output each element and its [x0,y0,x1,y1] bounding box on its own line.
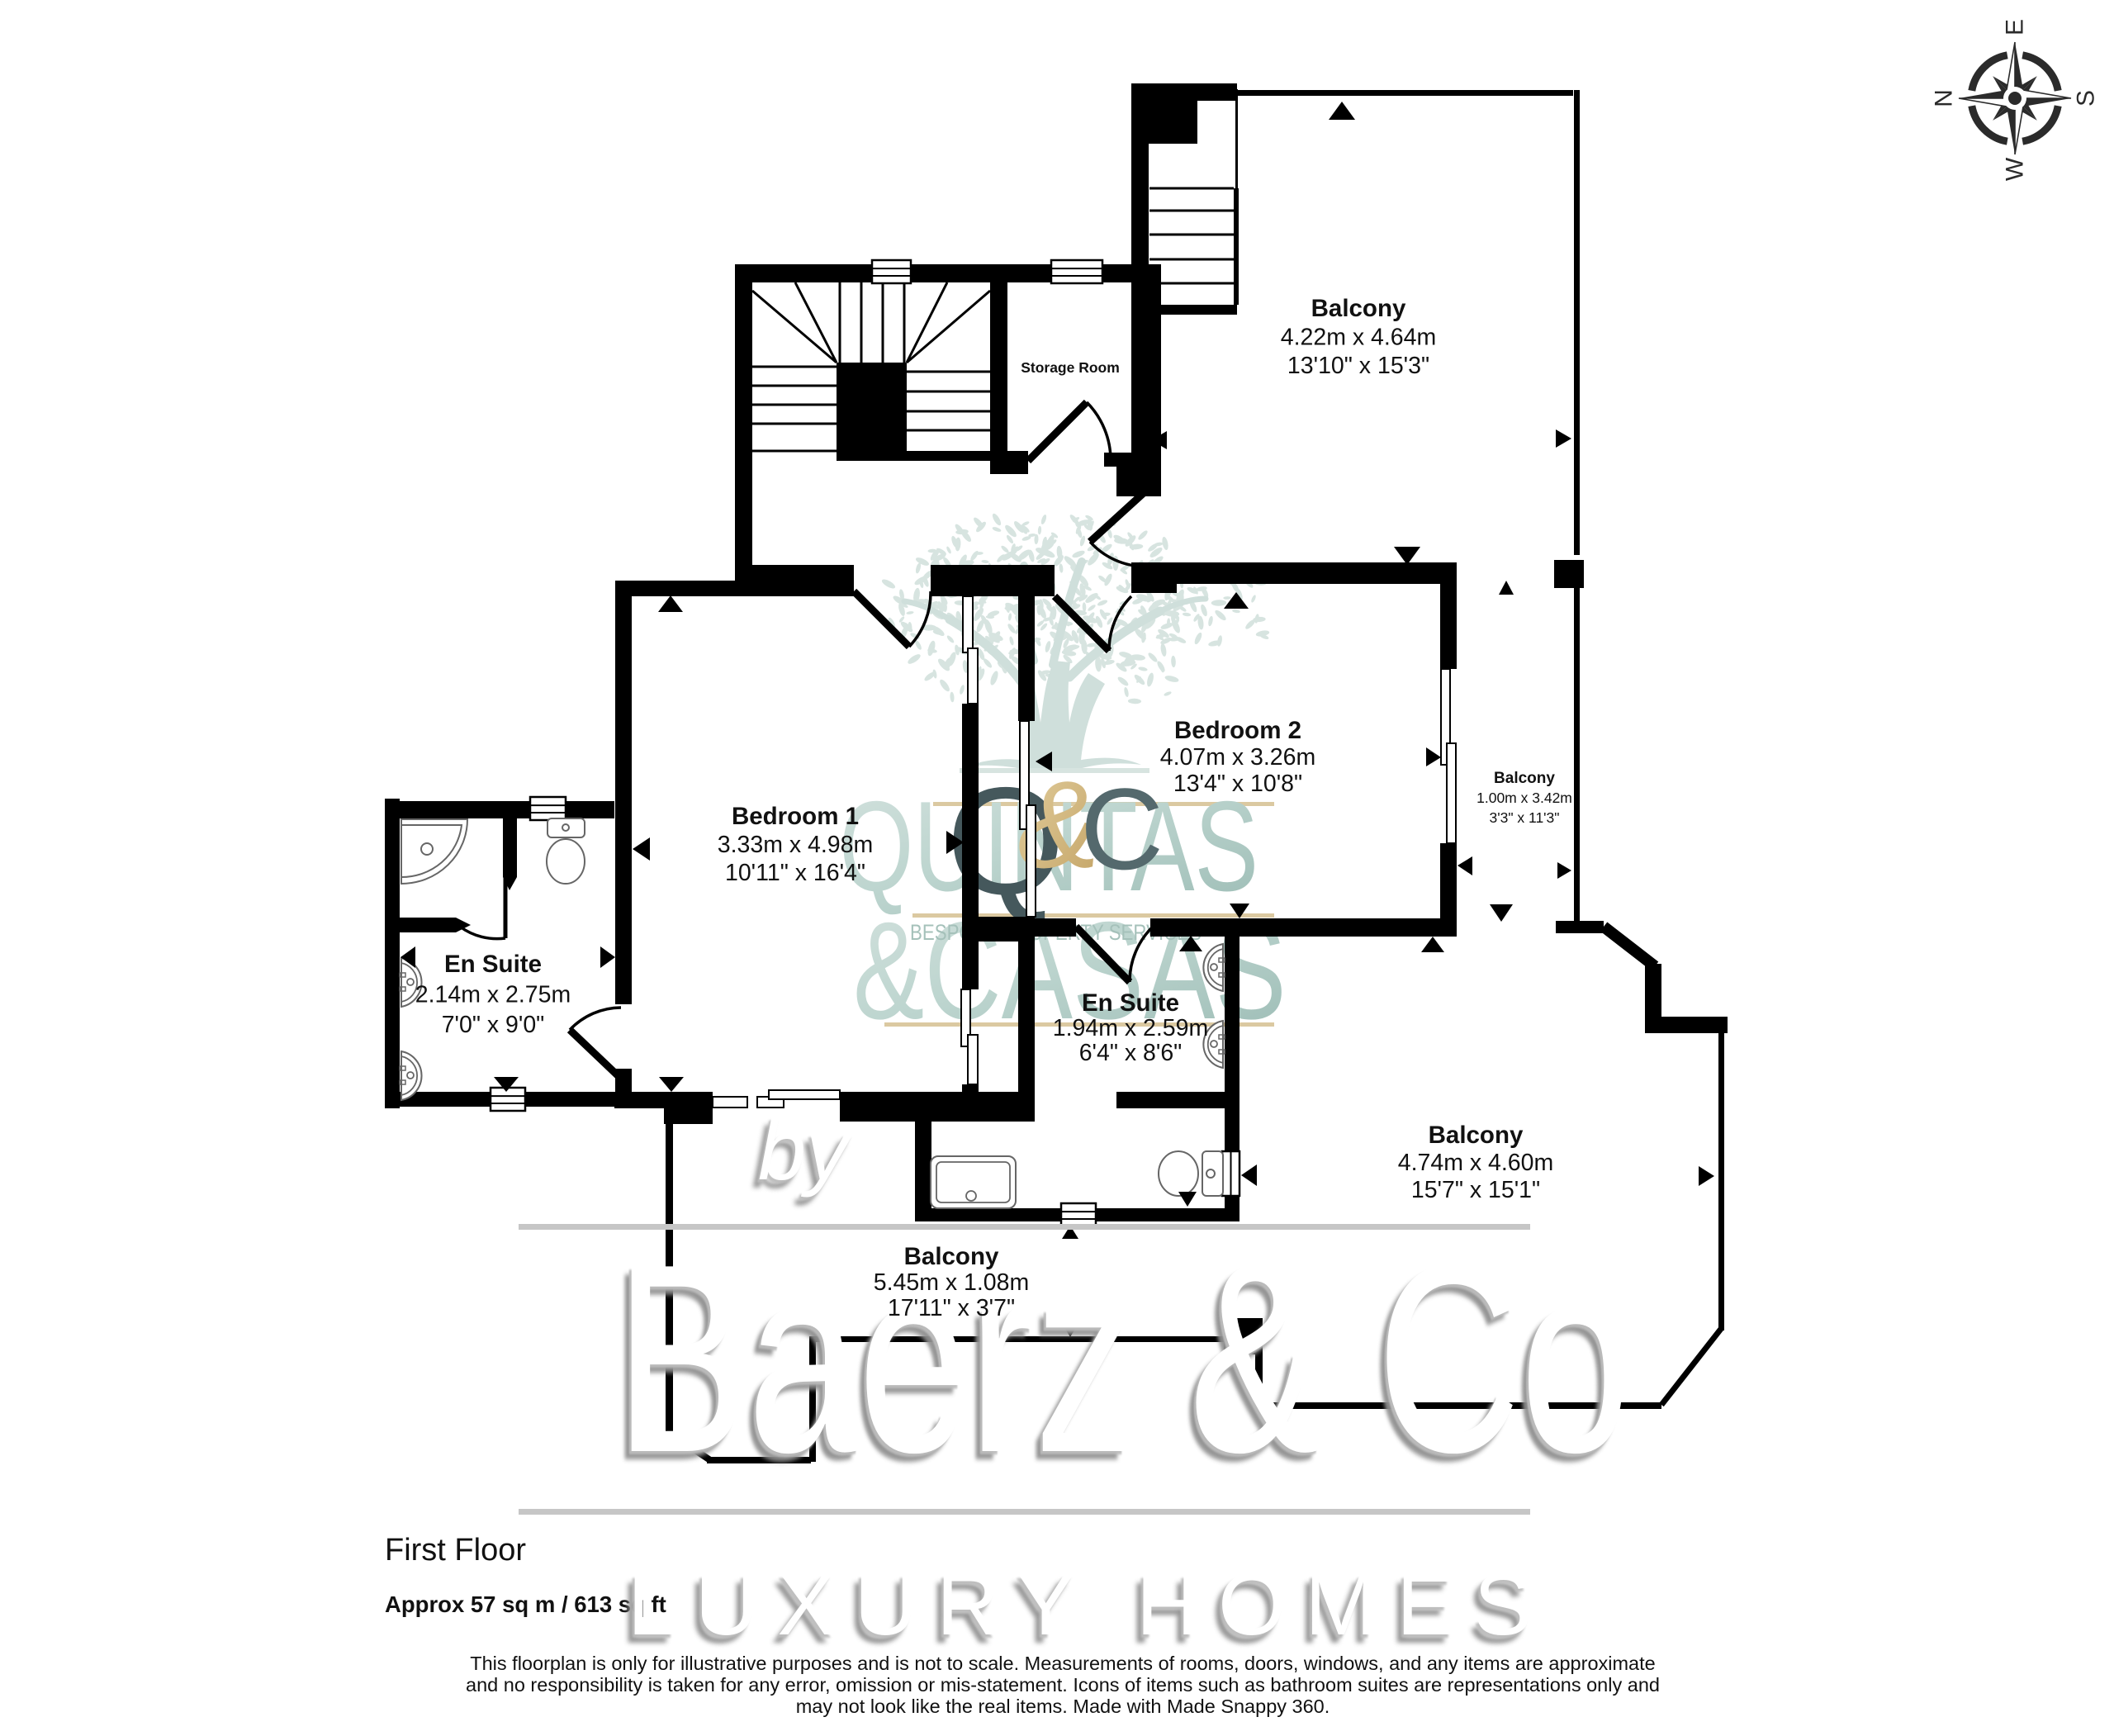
svg-text:LUXURY HOMES: LUXURY HOMES [628,1557,1551,1653]
svg-text:2.14m x 2.75m: 2.14m x 2.75m [415,982,571,1008]
svg-text:4.07m x 3.26m: 4.07m x 3.26m [1160,744,1316,771]
svg-text:7'0" x 9'0": 7'0" x 9'0" [442,1012,545,1038]
svg-text:may not look like the real ite: may not look like the real items. Made w… [796,1696,1330,1717]
svg-text:13'4" x 10'8": 13'4" x 10'8" [1173,771,1302,797]
svg-text:6'4" x 8'6": 6'4" x 8'6" [1079,1040,1183,1066]
svg-text:N: N [1931,89,1958,107]
svg-text:W: W [2002,157,2029,181]
svg-text:3'3" x 11'3": 3'3" x 11'3" [1490,809,1560,826]
svg-text:E: E [2002,19,2029,36]
svg-text:Bedroom 1: Bedroom 1 [732,803,859,830]
svg-text:4.74m x 4.60m: 4.74m x 4.60m [1398,1150,1554,1176]
svg-text:Balcony: Balcony [1494,770,1555,787]
svg-text:4.22m x 4.64m: 4.22m x 4.64m [1281,325,1437,351]
svg-text:1.00m x 3.42m: 1.00m x 3.42m [1476,790,1572,806]
svg-text:En Suite: En Suite [444,951,542,978]
svg-text:S: S [2073,90,2100,107]
svg-text:1.94m x 2.59m: 1.94m x 2.59m [1053,1015,1209,1041]
svg-text:First Floor: First Floor [385,1533,526,1568]
svg-text:by: by [758,1103,854,1198]
svg-text:Bedroom 2: Bedroom 2 [1174,717,1301,744]
svg-text:Baerz & Co: Baerz & Co [615,1208,1631,1509]
svg-text:Storage Room: Storage Room [1021,359,1120,376]
svg-text:C: C [1080,764,1164,894]
svg-text:Balcony: Balcony [1311,295,1406,322]
svg-text:10'11" x 16'4": 10'11" x 16'4" [725,860,865,886]
svg-text:and no responsibility is taken: and no responsibility is taken for any e… [466,1674,1660,1696]
svg-text:Balcony: Balcony [904,1243,999,1270]
svg-text:En Suite: En Suite [1082,989,1179,1017]
svg-text:17'11" x 3'7": 17'11" x 3'7" [888,1295,1015,1321]
svg-text:Balcony: Balcony [1429,1122,1524,1149]
svg-text:3.33m x 4.98m: 3.33m x 4.98m [718,832,874,858]
svg-text:5.45m x 1.08m: 5.45m x 1.08m [874,1269,1030,1296]
svg-text:13'10" x 15'3": 13'10" x 15'3" [1287,353,1429,379]
svg-text:15'7" x 15'1": 15'7" x 15'1" [1411,1177,1540,1203]
